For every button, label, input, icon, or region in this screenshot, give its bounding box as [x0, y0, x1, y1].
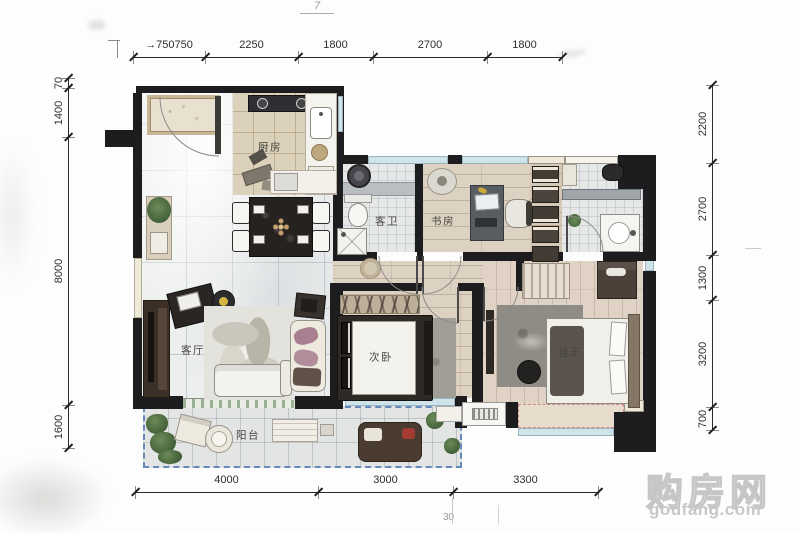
dim-label: 1300	[697, 265, 709, 289]
dim-label: 1600	[53, 414, 65, 438]
room-label-balcony: 阳台	[236, 428, 260, 443]
dim-label: 1400	[53, 100, 65, 124]
dim-label: 2200	[697, 112, 709, 136]
dim-label: 1800	[512, 39, 536, 51]
dim-label: 700	[697, 409, 709, 427]
dimension-layer: →750750225018002700180040003000330070140…	[0, 0, 800, 533]
dim-label: 8000	[53, 259, 65, 283]
room-label-study: 书房	[431, 214, 455, 229]
stray-line	[452, 498, 453, 524]
dim-line-right	[712, 85, 713, 430]
stray-line	[108, 40, 120, 41]
dim-label: 4000	[214, 474, 238, 486]
room-label-guest-bath: 客卫	[375, 214, 399, 229]
dim-label: 2700	[418, 39, 442, 51]
stray-line	[300, 13, 334, 14]
dim-label: 3000	[373, 474, 397, 486]
dim-label: 1800	[323, 39, 347, 51]
dim-line-top	[133, 57, 562, 58]
floor-plan-canvas: 厨房 客卫 书房 客厅 次卧 主卧 阳台 →750750225018002700…	[0, 0, 800, 533]
stray-mark-seven: 7	[314, 0, 320, 12]
room-label-second-bedroom: 次卧	[369, 350, 393, 365]
stray-line	[745, 248, 761, 249]
watermark-url: goufang.com	[649, 500, 761, 520]
dim-label: 3300	[513, 474, 537, 486]
dim-label: →750750	[145, 39, 193, 51]
dim-label: 2700	[697, 197, 709, 221]
stray-line	[117, 40, 118, 58]
room-label-master-bedroom: 主卧	[556, 345, 580, 360]
dim-label: 70	[53, 77, 65, 89]
dim-label: 3200	[697, 341, 709, 365]
room-label-kitchen: 厨房	[258, 140, 282, 155]
room-label-living: 客厅	[181, 343, 205, 358]
dim-label: 2250	[239, 39, 263, 51]
dim-line-bottom	[135, 492, 598, 493]
stray-line	[498, 505, 499, 525]
